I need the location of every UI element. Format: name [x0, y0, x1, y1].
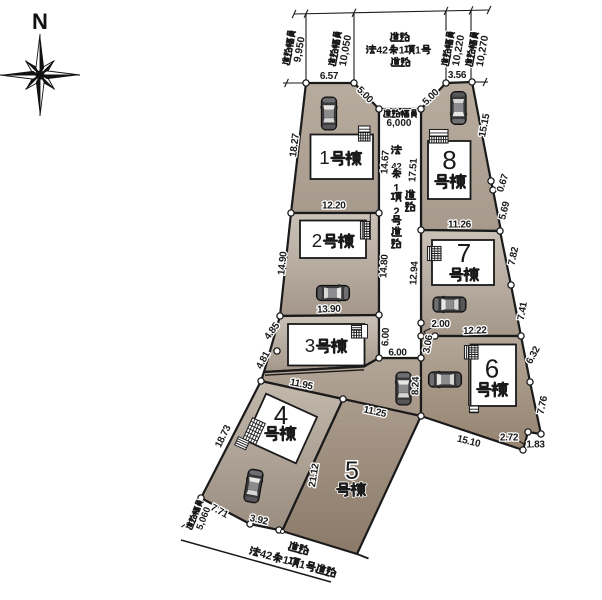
- svg-text:14.80: 14.80: [378, 254, 391, 279]
- svg-text:12.22: 12.22: [463, 325, 488, 337]
- svg-text:7: 7: [457, 238, 471, 268]
- svg-text:14.67: 14.67: [379, 150, 392, 175]
- svg-text:1: 1: [319, 147, 329, 168]
- svg-text:13.90: 13.90: [317, 304, 342, 316]
- svg-text:8: 8: [442, 145, 456, 175]
- svg-text:6: 6: [485, 354, 499, 384]
- svg-text:6.57: 6.57: [320, 71, 339, 82]
- svg-text:42: 42: [376, 44, 388, 56]
- svg-text:6.00: 6.00: [388, 348, 407, 359]
- svg-text:1: 1: [399, 44, 405, 56]
- svg-text:2.72: 2.72: [500, 433, 519, 444]
- svg-text:N: N: [32, 9, 48, 34]
- svg-text:2.00: 2.00: [431, 319, 450, 330]
- svg-text:11.26: 11.26: [448, 220, 472, 231]
- svg-text:6.00: 6.00: [380, 327, 392, 346]
- svg-text:3.56: 3.56: [448, 70, 467, 81]
- svg-text:1: 1: [415, 44, 421, 56]
- svg-text:12.94: 12.94: [408, 261, 421, 286]
- svg-text:5: 5: [345, 457, 359, 485]
- svg-text:1.83: 1.83: [526, 440, 545, 451]
- svg-text:6,000: 6,000: [386, 118, 411, 129]
- svg-text:8.24: 8.24: [410, 376, 422, 395]
- svg-text:2: 2: [312, 230, 322, 251]
- svg-text:17.51: 17.51: [407, 158, 420, 183]
- svg-text:12.20: 12.20: [322, 201, 346, 212]
- svg-text:3: 3: [305, 335, 315, 356]
